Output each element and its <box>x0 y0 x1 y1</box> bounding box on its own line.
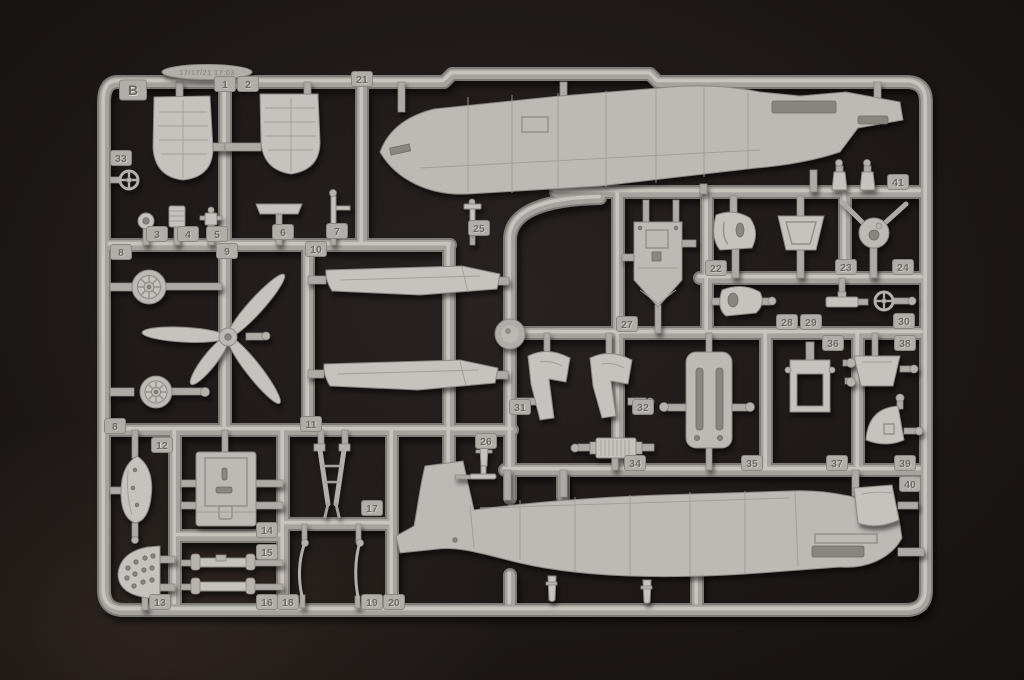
part-frame-36 <box>785 342 835 412</box>
part-number-tag: 2929 <box>801 315 822 330</box>
svg-text:29: 29 <box>805 317 817 329</box>
runner-boss-ring <box>495 319 525 349</box>
svg-text:8: 8 <box>112 421 118 433</box>
svg-text:15: 15 <box>261 547 273 559</box>
part-number-tag: 3434 <box>625 456 646 471</box>
part-number-tag: 3030 <box>894 314 915 329</box>
svg-text:9: 9 <box>224 246 230 258</box>
part-number-tag: 2222 <box>706 261 727 276</box>
part-number-tag: 1818 <box>278 595 299 610</box>
part-number-tag: 3333 <box>111 151 132 166</box>
part-number-tag: 55 <box>207 227 228 242</box>
svg-text:2: 2 <box>245 79 251 91</box>
svg-text:6: 6 <box>280 227 286 239</box>
svg-text:14: 14 <box>261 525 273 537</box>
part-number-tag: 2121 <box>352 72 373 87</box>
svg-text:30: 30 <box>898 316 910 328</box>
svg-text:41: 41 <box>892 177 904 189</box>
svg-text:16: 16 <box>261 597 273 609</box>
part-number-tag: 3737 <box>827 456 848 471</box>
svg-text:13: 13 <box>154 597 166 609</box>
svg-text:25: 25 <box>473 223 485 235</box>
svg-text:21: 21 <box>356 74 368 86</box>
part-bar-16 <box>181 578 283 594</box>
svg-text:36: 36 <box>827 338 839 350</box>
svg-text:32: 32 <box>637 402 649 414</box>
sprue-letter-tag: BB <box>120 80 147 100</box>
part-number-tag: 3131 <box>510 400 531 415</box>
part-number-tag: 1919 <box>362 595 383 610</box>
part-number-tag: 11 <box>215 77 236 92</box>
part-bucket-seat-23 <box>778 196 824 278</box>
svg-text:37: 37 <box>831 458 843 470</box>
svg-text:1: 1 <box>222 79 228 91</box>
part-number-tag: 3838 <box>895 336 916 351</box>
svg-text:24: 24 <box>897 262 909 274</box>
svg-text:17: 17 <box>366 503 378 515</box>
svg-text:40: 40 <box>904 479 916 491</box>
part-number-tag: 2020 <box>384 595 405 610</box>
part-number-tag: 3535 <box>742 456 763 471</box>
svg-text:7: 7 <box>334 226 340 238</box>
part-number-tag: 3636 <box>823 336 844 351</box>
part-number-tag: 1414 <box>257 523 278 538</box>
part-number-tag: 3232 <box>633 400 654 415</box>
part-number-tag: 2828 <box>777 315 798 330</box>
svg-text:35: 35 <box>746 458 758 470</box>
part-stabilizer-2 <box>308 360 508 390</box>
part-cockpit-floor-27 <box>622 200 696 333</box>
svg-text:19: 19 <box>366 597 378 609</box>
part-number-tag: 1515 <box>257 545 278 560</box>
part-landing-gear-17 <box>314 430 350 517</box>
svg-text:4: 4 <box>185 229 191 241</box>
svg-text:22: 22 <box>710 263 722 275</box>
part-number-tag: 66 <box>273 225 294 240</box>
part-number-tag: 88 <box>105 419 126 434</box>
mold-date-stamp-text: 17/17/21 17:03 <box>179 68 235 77</box>
part-number-tag: 2525 <box>469 221 490 236</box>
part-small-pin-b <box>641 580 652 604</box>
part-number-tag: 1717 <box>362 501 383 516</box>
part-number-tag: 22 <box>238 77 259 92</box>
part-wing-panel-1 <box>153 82 226 180</box>
part-cover-12 <box>110 430 152 544</box>
svg-text:B: B <box>128 82 138 98</box>
part-number-tag: 33 <box>147 227 168 242</box>
svg-text:34: 34 <box>629 458 641 470</box>
svg-text:23: 23 <box>840 262 852 274</box>
part-number-tag: 99 <box>217 244 238 259</box>
svg-text:18: 18 <box>282 597 294 609</box>
svg-text:8: 8 <box>118 247 124 259</box>
svg-text:3: 3 <box>154 229 160 241</box>
svg-text:12: 12 <box>156 440 168 452</box>
part-number-tag: 1616 <box>257 595 278 610</box>
part-supercharger-28 <box>712 286 776 316</box>
svg-text:33: 33 <box>115 153 127 165</box>
part-number-tag: 1111 <box>301 417 322 432</box>
svg-text:31: 31 <box>514 402 526 414</box>
svg-text:38: 38 <box>899 338 911 350</box>
part-number-tag: 1010 <box>306 242 327 257</box>
part-handwheel-33 <box>110 171 138 189</box>
svg-text:10: 10 <box>310 244 322 256</box>
part-dome-39 <box>866 394 923 444</box>
svg-text:39: 39 <box>899 458 911 470</box>
part-fuselage-upper-half <box>380 82 903 194</box>
svg-text:26: 26 <box>480 436 492 448</box>
part-number-tag: 1313 <box>150 595 171 610</box>
part-tail-wheel-30 <box>875 292 916 310</box>
part-wing-panel-2 <box>225 82 320 174</box>
part-cockpit-tub-35 <box>660 333 755 470</box>
part-number-tag: 44 <box>178 227 199 242</box>
svg-text:28: 28 <box>781 317 793 329</box>
part-number-tag: 2727 <box>617 317 638 332</box>
part-number-tag: 4040 <box>900 477 921 492</box>
part-small-pin-a <box>546 576 557 602</box>
svg-text:27: 27 <box>621 319 633 331</box>
part-number-tag: 1212 <box>152 438 173 453</box>
part-number-tag: 2626 <box>476 434 497 449</box>
svg-text:5: 5 <box>214 229 220 241</box>
part-stabilizer-1 <box>308 266 509 295</box>
part-whisker-18 <box>299 524 308 608</box>
svg-text:11: 11 <box>305 419 316 431</box>
sprue-photo: 17/17/21 17:03 BB11222121333333445566772… <box>0 0 1024 680</box>
part-number-tag: 77 <box>327 224 348 239</box>
part-deck-14 <box>181 430 283 526</box>
part-number-tag: 88 <box>111 245 132 260</box>
sprue-drawing: 17/17/21 17:03 BB11222121333333445566772… <box>0 0 1024 680</box>
svg-text:20: 20 <box>388 597 400 609</box>
part-number-tag: 2424 <box>893 260 914 275</box>
part-wheel-1 <box>110 270 222 304</box>
part-number-tag: 3939 <box>895 456 916 471</box>
part-number-tag: 2323 <box>836 260 857 275</box>
part-number-tag: 4141 <box>888 175 909 190</box>
